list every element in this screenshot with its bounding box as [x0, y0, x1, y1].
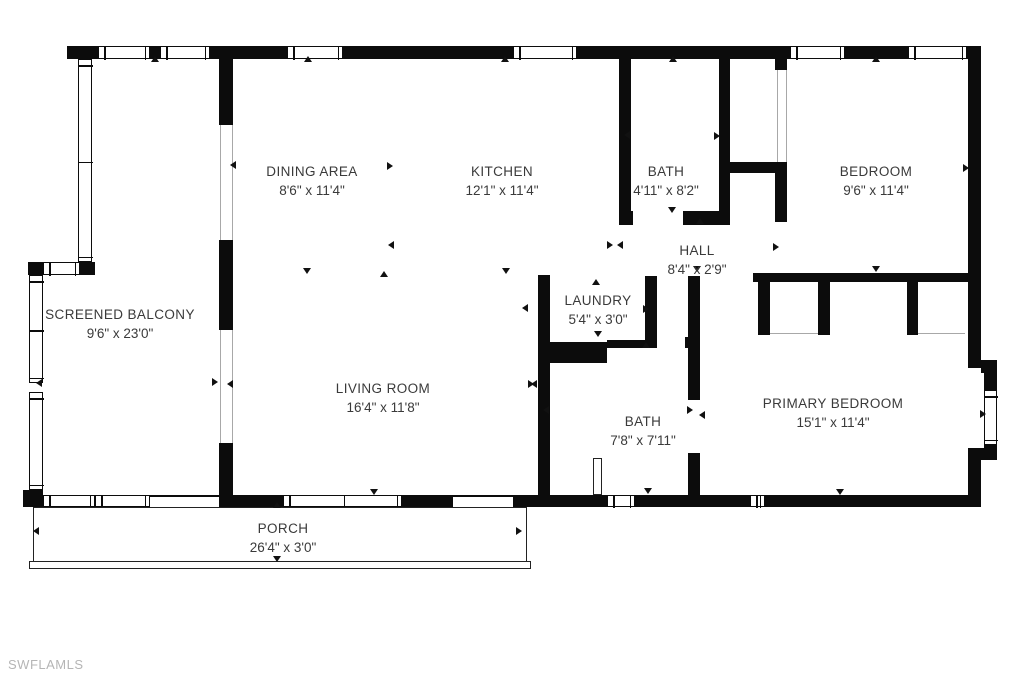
room-name: LIVING ROOM	[336, 379, 430, 398]
direction-arrow-right	[773, 243, 779, 251]
window	[513, 46, 577, 59]
window	[607, 495, 635, 507]
room-name: BEDROOM	[840, 162, 913, 181]
window-tick	[30, 398, 44, 400]
window-tick	[914, 47, 916, 60]
opening-edge	[786, 70, 787, 162]
wall-segment	[765, 495, 981, 507]
room-name: BATH	[633, 162, 699, 181]
wall-segment	[577, 46, 790, 59]
window	[29, 275, 43, 383]
window-tick	[293, 47, 295, 60]
wall-segment	[683, 211, 730, 225]
window-tick	[760, 496, 762, 508]
floorplan: DINING AREA8'6" x 11'4"KITCHEN12'1" x 11…	[0, 0, 1024, 682]
room-dimensions: 5'4" x 3'0"	[564, 310, 631, 329]
window	[43, 495, 95, 507]
wall-segment	[775, 162, 787, 222]
room-label: BATH7'8" x 7'11"	[610, 412, 676, 450]
window-tick	[796, 47, 798, 60]
window	[287, 46, 343, 59]
room-label: DINING AREA8'6" x 11'4"	[266, 162, 357, 200]
window	[160, 46, 210, 59]
wall-segment	[775, 59, 787, 70]
direction-arrow-down	[644, 488, 652, 494]
room-name: LAUNDRY	[564, 291, 631, 310]
window-tick	[613, 496, 615, 508]
opening-edge	[232, 125, 233, 240]
direction-arrow-right	[528, 380, 534, 388]
window	[78, 59, 92, 262]
wall-segment	[343, 46, 513, 59]
window-tick	[962, 47, 964, 60]
window-tick	[79, 65, 93, 67]
direction-arrow-down	[303, 268, 311, 274]
window	[95, 495, 150, 507]
room-dimensions: 4'11" x 8'2"	[633, 181, 699, 200]
direction-arrow-right	[963, 164, 969, 172]
room-dimensions: 8'4" x 2'9"	[667, 260, 726, 279]
window	[98, 46, 150, 59]
window-tick	[985, 440, 998, 442]
window	[750, 495, 765, 507]
direction-arrow-up	[304, 56, 312, 62]
threshold-line	[453, 495, 513, 497]
wall-segment	[402, 495, 453, 507]
room-dimensions: 26'4" x 3'0"	[250, 538, 317, 557]
window-tick	[79, 162, 93, 164]
opening-edge	[770, 333, 818, 334]
wall-segment	[219, 240, 233, 330]
wall-segment	[28, 262, 43, 275]
room-name: BATH	[610, 412, 676, 431]
room-name: PORCH	[250, 519, 317, 538]
room-label: LAUNDRY5'4" x 3'0"	[564, 291, 631, 329]
room-label: BEDROOM9'6" x 11'4"	[840, 162, 913, 200]
window-tick	[572, 47, 574, 60]
wall-segment	[984, 371, 997, 391]
room-label: HALL8'4" x 2'9"	[667, 241, 726, 279]
threshold-line	[150, 495, 219, 497]
wall-segment	[688, 276, 700, 400]
direction-arrow-left	[522, 304, 528, 312]
window-tick	[30, 485, 44, 487]
wall-segment	[550, 342, 607, 363]
direction-arrow-up	[592, 279, 600, 285]
direction-arrow-up	[669, 56, 677, 62]
wall-segment	[635, 495, 750, 507]
direction-arrow-right	[212, 378, 218, 386]
wall-segment	[753, 273, 977, 282]
room-dimensions: 12'1" x 11'4"	[465, 181, 538, 200]
wall-segment	[758, 282, 770, 335]
room-dimensions: 15'1" x 11'4"	[763, 413, 904, 432]
direction-arrow-right	[714, 132, 720, 140]
window-tick	[630, 496, 632, 508]
window-tick	[985, 396, 998, 398]
room-name: KITCHEN	[465, 162, 538, 181]
room-name: HALL	[667, 241, 726, 260]
direction-arrow-left	[624, 131, 630, 139]
room-label: SCREENED BALCONY9'6" x 23'0"	[45, 305, 195, 343]
direction-arrow-right	[687, 406, 693, 414]
window	[283, 495, 402, 507]
room-label: LIVING ROOM16'4" x 11'8"	[336, 379, 430, 417]
wall-segment	[210, 46, 287, 59]
opening-edge	[918, 333, 965, 334]
wall-segment	[907, 282, 918, 335]
direction-arrow-left	[230, 161, 236, 169]
wall-segment	[23, 490, 43, 507]
direction-arrow-right	[516, 527, 522, 535]
wall-segment	[219, 443, 233, 495]
window	[908, 46, 967, 59]
room-name: PRIMARY BEDROOM	[763, 394, 904, 413]
window	[790, 46, 845, 59]
direction-arrow-up	[872, 56, 880, 62]
room-dimensions: 8'6" x 11'4"	[266, 181, 357, 200]
direction-arrow-left	[617, 241, 623, 249]
opening-edge	[220, 125, 221, 240]
room-label: PORCH26'4" x 3'0"	[250, 519, 317, 557]
direction-arrow-down	[872, 266, 880, 272]
direction-arrow-up	[380, 271, 388, 277]
wall-segment	[80, 262, 95, 275]
direction-arrow-up	[642, 342, 650, 348]
room-dimensions: 9'6" x 11'4"	[840, 181, 913, 200]
window-tick	[75, 263, 77, 276]
direction-arrow-up	[273, 502, 281, 508]
wall-segment	[513, 495, 607, 507]
wall-segment	[688, 453, 700, 495]
opening-edge	[220, 330, 221, 443]
direction-arrow-left	[543, 406, 549, 414]
watermark-text: SWFLAMLS	[8, 657, 84, 672]
opening-edge	[777, 70, 778, 162]
direction-arrow-down	[370, 489, 378, 495]
window-tick	[49, 263, 51, 276]
direction-arrow-up	[501, 56, 509, 62]
room-name: SCREENED BALCONY	[45, 305, 195, 324]
window	[43, 262, 80, 275]
window-tick	[104, 47, 106, 60]
window-tick	[79, 257, 93, 259]
direction-arrow-left	[33, 527, 39, 535]
direction-arrow-right	[980, 410, 986, 418]
direction-arrow-up	[696, 218, 704, 224]
wall-segment	[818, 282, 830, 335]
wall-segment	[67, 46, 98, 59]
direction-arrow-left	[227, 380, 233, 388]
window-tick	[166, 47, 168, 60]
room-label: PRIMARY BEDROOM15'1" x 11'4"	[763, 394, 904, 432]
window-tick	[205, 47, 207, 60]
room-label: KITCHEN12'1" x 11'4"	[465, 162, 538, 200]
wall-segment	[719, 59, 730, 225]
wall-segment	[219, 59, 233, 125]
direction-arrow-left	[699, 411, 705, 419]
room-dimensions: 7'8" x 7'11"	[610, 431, 676, 450]
room-name: DINING AREA	[266, 162, 357, 181]
wall-segment	[968, 46, 981, 368]
direction-arrow-right	[607, 241, 613, 249]
window-tick	[756, 496, 758, 508]
direction-arrow-down	[668, 207, 676, 213]
wall-segment	[538, 275, 550, 495]
direction-arrow-down	[836, 489, 844, 495]
window-tick	[840, 47, 842, 60]
direction-arrow-right	[643, 305, 649, 313]
direction-arrow-up	[151, 56, 159, 62]
room-label: BATH4'11" x 8'2"	[633, 162, 699, 200]
direction-arrow-left	[388, 241, 394, 249]
window-tick	[145, 47, 147, 60]
direction-arrow-left	[36, 379, 42, 387]
room-dimensions: 16'4" x 11'8"	[336, 398, 430, 417]
window-tick	[30, 281, 44, 283]
wall-segment	[619, 211, 633, 225]
window-tick	[519, 47, 521, 60]
porch-step-band	[29, 561, 531, 569]
room-dimensions: 9'6" x 23'0"	[45, 324, 195, 343]
window-tick	[338, 47, 340, 60]
direction-arrow-down	[502, 268, 510, 274]
window	[29, 392, 43, 490]
direction-arrow-right	[387, 162, 393, 170]
window-tick	[30, 330, 44, 332]
direction-arrow-down	[594, 331, 602, 337]
door-panel	[593, 458, 602, 495]
